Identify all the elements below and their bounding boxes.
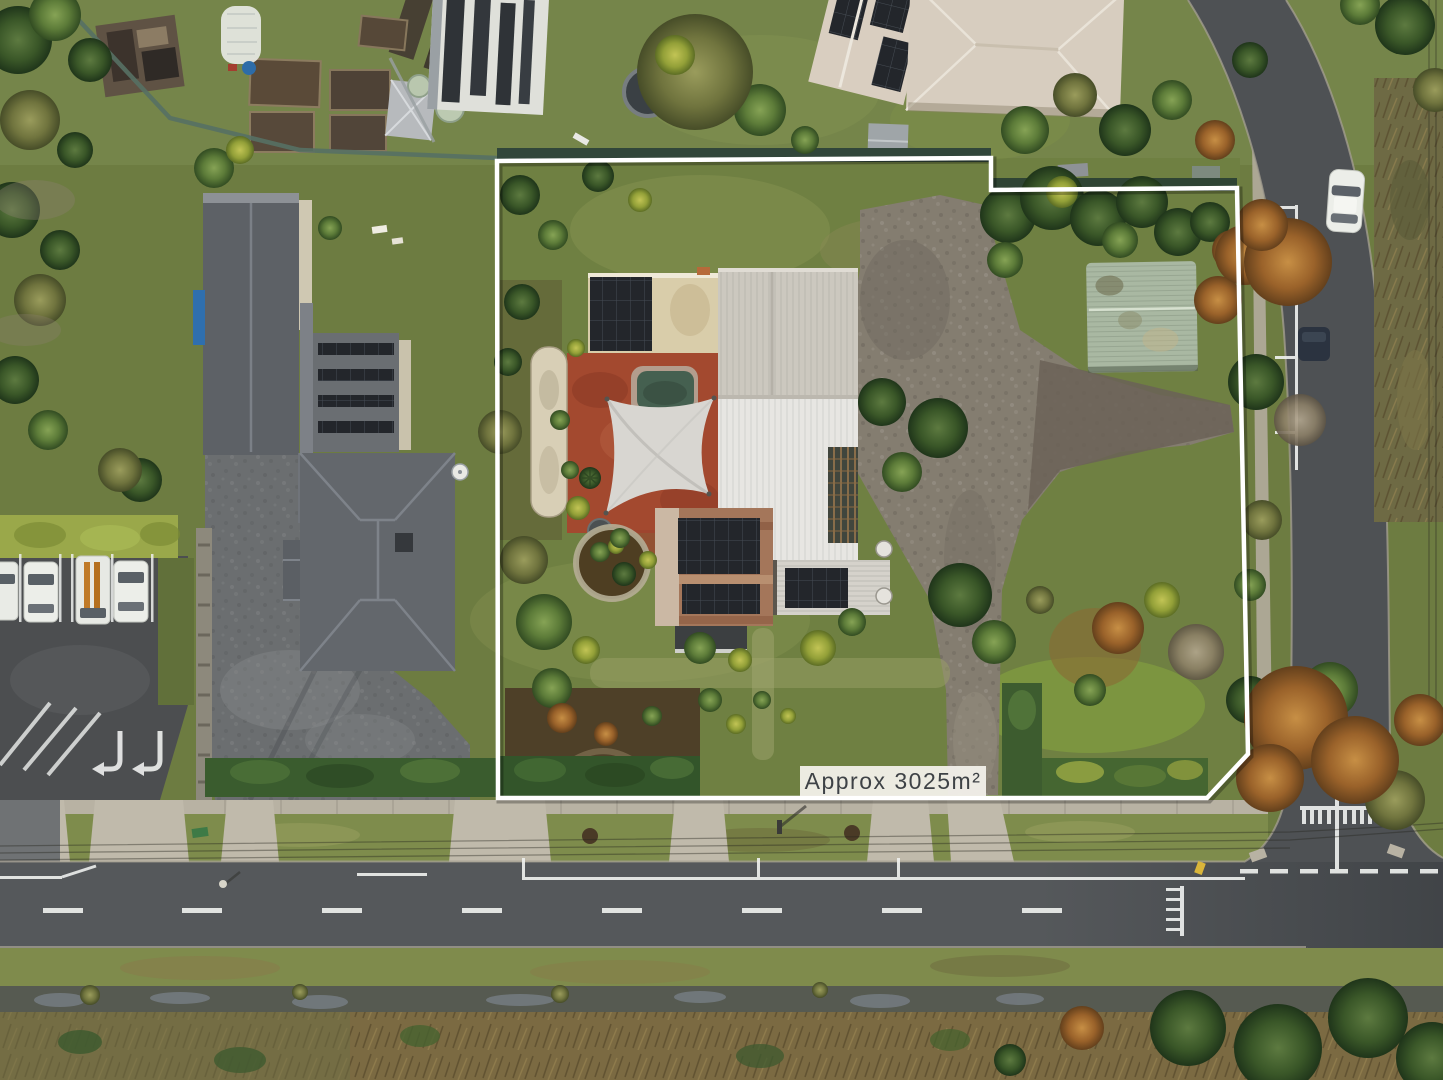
blue-tarp: [193, 290, 205, 345]
parked-car: [114, 561, 148, 622]
parked-car: [24, 562, 58, 622]
parked-ladder-truck: [76, 556, 110, 624]
green-roof-shed: [1086, 261, 1198, 373]
picnic-table: [1192, 166, 1220, 180]
area-label-text: Approx 3025m²: [805, 768, 982, 794]
car-park: [0, 515, 194, 800]
aerial-photo: Approx 3025m²: [0, 0, 1443, 1080]
dark-car-on-road: [1298, 327, 1330, 361]
area-label: Approx 3025m²: [800, 766, 986, 796]
chimney: [395, 533, 413, 552]
water-tank-cylinder: [531, 347, 567, 517]
water-tank-round: [408, 75, 430, 97]
tree-stump: [582, 828, 598, 844]
church-house-roof: [283, 453, 455, 671]
striped-roof-house: [427, 0, 549, 115]
white-car-on-road: [1326, 169, 1365, 233]
solar-cottage: [588, 267, 718, 353]
tree-stump: [844, 825, 860, 841]
side-hedge: [158, 558, 194, 705]
pergola-grid: [828, 447, 858, 543]
parked-car: [0, 562, 18, 620]
wetland-east: [1374, 78, 1443, 522]
wetland-south: [0, 948, 1443, 1080]
